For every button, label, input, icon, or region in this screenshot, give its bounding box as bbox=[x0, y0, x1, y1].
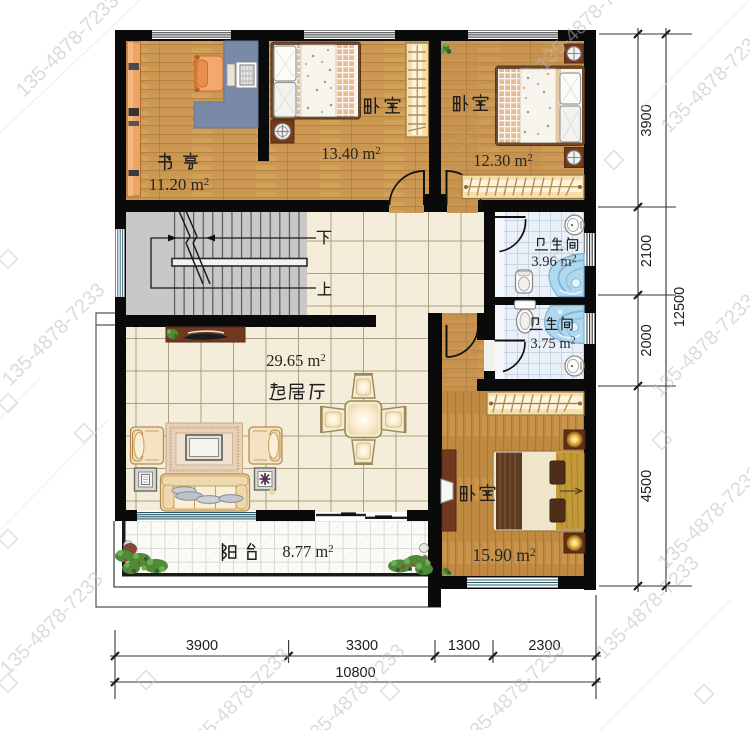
svg-text:2100: 2100 bbox=[639, 235, 655, 267]
svg-text:12500: 12500 bbox=[672, 287, 688, 327]
svg-text:3300: 3300 bbox=[346, 638, 378, 654]
svg-text:1300: 1300 bbox=[448, 638, 480, 654]
svg-text:11.20 m2: 11.20 m2 bbox=[149, 175, 210, 194]
svg-text:3900: 3900 bbox=[186, 638, 218, 654]
svg-text:2000: 2000 bbox=[639, 324, 655, 356]
svg-text:4500: 4500 bbox=[639, 470, 655, 502]
svg-text:29.65 m2: 29.65 m2 bbox=[266, 351, 326, 370]
svg-text:3.75 m2: 3.75 m2 bbox=[530, 336, 575, 353]
svg-text:8.77 m2: 8.77 m2 bbox=[282, 542, 333, 561]
svg-text:12.30 m2: 12.30 m2 bbox=[473, 151, 533, 170]
svg-text:15.90 m2: 15.90 m2 bbox=[472, 545, 535, 565]
svg-text:13.40 m2: 13.40 m2 bbox=[321, 144, 381, 163]
